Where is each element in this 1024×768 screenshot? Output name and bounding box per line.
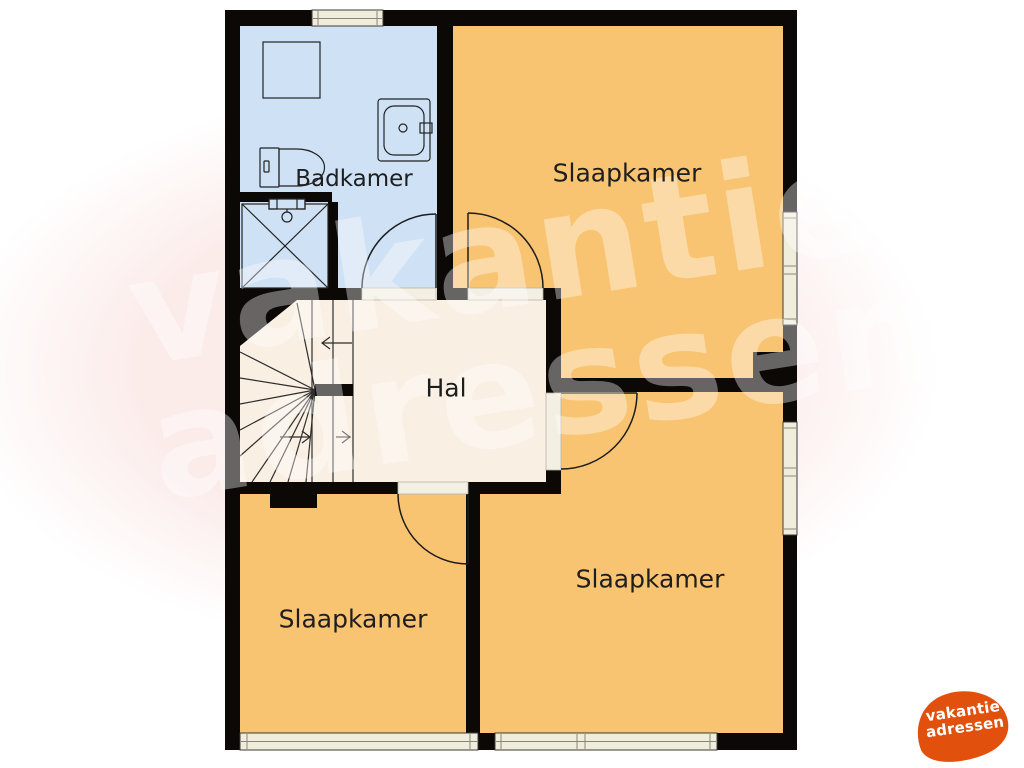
room-label-hal: Hal [425, 374, 466, 403]
wall-stub-bedroom-bottom-left [270, 494, 317, 508]
wall-shower-right [328, 202, 338, 288]
bedroom-bottom-right-floor-ext [561, 392, 783, 494]
room-label-badkamer: Badkamer [295, 166, 413, 192]
threshold-bedroom-bottom-right [546, 393, 561, 470]
bathroom-floor [240, 26, 437, 288]
bedroom-bottom-right-floor [480, 494, 783, 733]
threshold-bedroom-top-right [468, 288, 543, 300]
room-label-slaapkamer-top-right: Slaapkamer [553, 159, 702, 188]
hall-floor [240, 300, 546, 482]
threshold-bedroom-bottom-left [398, 482, 468, 494]
window-bedroom-top-right [783, 212, 797, 325]
wall-hall-top-1 [240, 288, 362, 300]
floorplan-canvas: vakantie adressen Badkamer Slaapkamer Ha… [0, 0, 1024, 768]
wall-between-right-bedrooms [556, 378, 783, 392]
room-label-slaapkamer-bottom-left: Slaapkamer [279, 605, 428, 634]
wall-hall-bottom-1 [225, 482, 398, 494]
vakantieadressen-logo: vakantie adressen [912, 688, 1014, 762]
wall-exterior-right [783, 10, 797, 750]
window-bedroom-bottom-right [783, 422, 797, 535]
room-label-slaapkamer-bottom-right: Slaapkamer [576, 565, 725, 594]
floorplan-drawing [0, 0, 1024, 768]
wall-hall-bottom-2 [468, 482, 561, 494]
stair-newel-wall [315, 384, 353, 396]
wall-hall-top-3 [543, 288, 561, 300]
wall-hall-top-2 [437, 288, 468, 300]
bedroom-top-right-floor-ext [561, 300, 783, 378]
wall-stub-right [753, 352, 783, 379]
wall-exterior-top [225, 10, 797, 26]
threshold-bathroom [362, 288, 436, 300]
wall-bathroom-bedroom-divider [437, 26, 453, 300]
wall-exterior-left [225, 10, 240, 750]
